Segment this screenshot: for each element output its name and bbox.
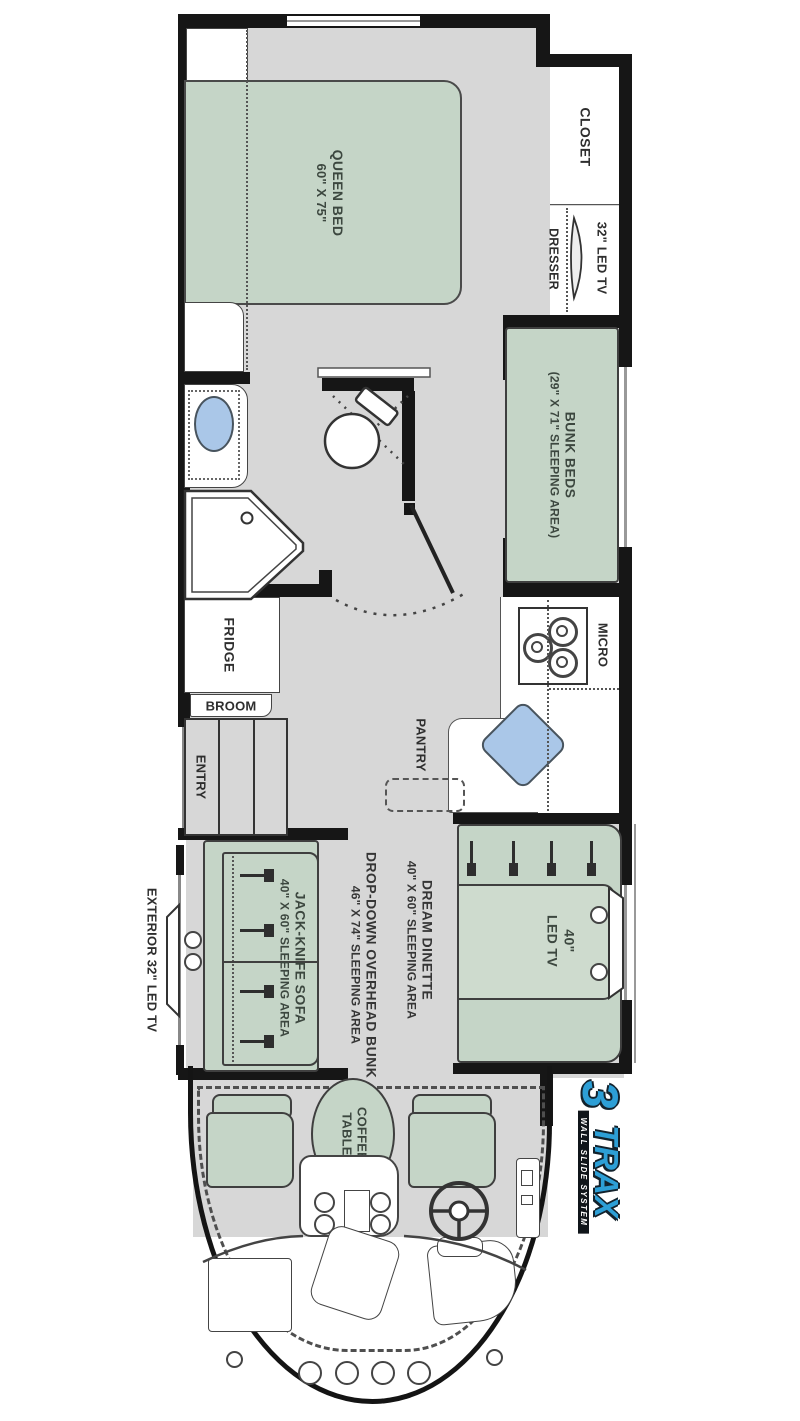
sofa-belt-4-buckle bbox=[264, 1035, 274, 1048]
wall-toilet-right bbox=[402, 391, 415, 501]
tv32-label: 32" LED TV bbox=[594, 222, 609, 294]
wall-kitchen-top bbox=[503, 583, 632, 597]
burner-1-center bbox=[531, 641, 543, 653]
bunk-label: BUNK BEDS (29" X 71" SLEEPING AREA) bbox=[548, 372, 579, 539]
wall-dinette-top bbox=[453, 813, 632, 824]
sofa-dotted-line bbox=[232, 856, 234, 1062]
pantry-text: PANTRY bbox=[413, 718, 428, 771]
rv-floorplan: QUEEN BED 60" X 75" CLOSET DRESSER 32" L… bbox=[0, 0, 800, 1421]
dinette-belt-1-buckle bbox=[467, 863, 476, 876]
sofa-label: JACK-KNIFE SOFA 40" X 60" SLEEPING AREA bbox=[278, 879, 309, 1037]
dinette-belt-4 bbox=[590, 841, 593, 865]
nose-light-4 bbox=[407, 1361, 431, 1385]
wall-bath-stub bbox=[319, 570, 332, 597]
overhead-bunk-size: 46" X 74" SLEEPING AREA bbox=[349, 852, 363, 1078]
exterior-mask-top-right bbox=[550, 0, 640, 54]
door-handle bbox=[521, 1170, 533, 1186]
dresser-label: DRESSER bbox=[546, 228, 561, 290]
trax-logo-name: TRAX bbox=[590, 1125, 621, 1219]
queen-bed-name: QUEEN BED bbox=[329, 150, 346, 237]
door-switch bbox=[521, 1195, 533, 1205]
vanity-divider bbox=[184, 372, 250, 384]
entry-step-divider-2 bbox=[253, 719, 255, 835]
burner-2-center bbox=[556, 625, 568, 637]
exterior-tv-text: EXTERIOR 32" LED TV bbox=[144, 888, 159, 1032]
pantry-label: PANTRY bbox=[413, 718, 428, 771]
closet-label: CLOSET bbox=[577, 107, 594, 166]
counter-dotted-h bbox=[549, 688, 619, 690]
sofa-belt-4 bbox=[240, 1040, 266, 1043]
dresser-dotted-edge bbox=[566, 208, 568, 312]
coffee-table-label: COFFEE TABLE bbox=[339, 1107, 370, 1161]
nose-light-2 bbox=[335, 1361, 359, 1385]
dinette-belt-4-buckle bbox=[587, 863, 596, 876]
bunk-size: (29" X 71" SLEEPING AREA) bbox=[548, 372, 562, 539]
fridge-text: FRIDGE bbox=[221, 617, 238, 672]
nightstand-head bbox=[186, 28, 248, 82]
trax-logo-number: 3 bbox=[575, 1081, 625, 1109]
window-bunk-line bbox=[624, 367, 627, 547]
dinette-tv-mount-bottom bbox=[590, 963, 608, 981]
coffee-table-line1: COFFEE bbox=[354, 1107, 369, 1161]
wall-closet-top bbox=[536, 54, 632, 67]
cupholder-3 bbox=[370, 1192, 391, 1213]
sofa-cupholder-2 bbox=[184, 953, 202, 971]
entry-label: ENTRY bbox=[193, 755, 208, 800]
bath-sink bbox=[194, 396, 234, 452]
entry-step-divider-1 bbox=[218, 719, 220, 835]
wall-toilet-jamb bbox=[404, 503, 415, 515]
dinette-label: DREAM DINETTE 40" X 60" SLEEPING AREA bbox=[405, 861, 436, 1019]
tv40-text: LED TV bbox=[544, 915, 561, 967]
dinette-tv-mount-top bbox=[590, 906, 608, 924]
cupholder-4 bbox=[370, 1214, 391, 1235]
burner-3-center bbox=[556, 656, 568, 668]
dash-left-console bbox=[208, 1258, 292, 1332]
dresser-text: DRESSER bbox=[546, 228, 561, 290]
tv40-label: 40" LED TV bbox=[544, 915, 577, 967]
steering-column bbox=[437, 1237, 483, 1257]
broom-label: BROOM bbox=[206, 698, 257, 713]
dinette-slide-outline bbox=[634, 824, 636, 1063]
broom-text: BROOM bbox=[206, 698, 257, 713]
dinette-belt-3 bbox=[550, 841, 553, 865]
sofa-belt-2 bbox=[240, 929, 266, 932]
nose-light-3 bbox=[371, 1361, 395, 1385]
tv40-size: 40" bbox=[561, 915, 578, 967]
tv32-text: 32" LED TV bbox=[594, 222, 609, 294]
entry-text: ENTRY bbox=[193, 755, 208, 800]
sofa-size: 40" X 60" SLEEPING AREA bbox=[278, 879, 292, 1037]
bed-slide-dotted-line bbox=[246, 30, 248, 370]
sofa-belt-1 bbox=[240, 874, 266, 877]
dinette-belt-1 bbox=[470, 841, 473, 865]
wall-bath-bottom bbox=[178, 584, 332, 597]
overhead-bunk-name: DROP-DOWN OVERHEAD BUNK bbox=[363, 852, 380, 1078]
trax-logo: 3 TRAX WALL SLIDE SYSTEM bbox=[575, 1081, 625, 1234]
coffee-table-line2: TABLE bbox=[339, 1107, 354, 1161]
dinette-belt-2-buckle bbox=[509, 863, 518, 876]
sofa-slide-window-line bbox=[178, 875, 181, 1045]
sofa-slide-cap-bottom bbox=[176, 1045, 184, 1075]
sofa-slide-cap-top bbox=[176, 845, 184, 875]
nose-light-1 bbox=[298, 1361, 322, 1385]
left-chair-seat bbox=[206, 1112, 294, 1188]
queen-bed-label: QUEEN BED 60" X 75" bbox=[314, 150, 346, 237]
counter-dotted-v bbox=[547, 600, 549, 811]
wall-toilet-top bbox=[322, 378, 414, 391]
dinette-belt-3-buckle bbox=[547, 863, 556, 876]
fridge-label: FRIDGE bbox=[221, 617, 238, 672]
closet-text: CLOSET bbox=[577, 107, 594, 166]
console-tray bbox=[344, 1190, 370, 1232]
sofa-cupholder-1 bbox=[184, 931, 202, 949]
window-top-line bbox=[287, 20, 420, 22]
cupholder-1 bbox=[314, 1192, 335, 1213]
micro-label: MICRO bbox=[595, 623, 610, 667]
overhead-bunk-label: DROP-DOWN OVERHEAD BUNK 46" X 74" SLEEPI… bbox=[349, 852, 380, 1078]
nose-light-small-right bbox=[486, 1349, 503, 1366]
sofa-belt-2-buckle bbox=[264, 924, 274, 937]
bunk-name: BUNK BEDS bbox=[562, 372, 579, 539]
trax-logo-tagline: WALL SLIDE SYSTEM bbox=[578, 1110, 589, 1233]
dinette-name: DREAM DINETTE bbox=[419, 861, 436, 1019]
queen-bed-size: 60" X 75" bbox=[314, 150, 329, 237]
sofa-name: JACK-KNIFE SOFA bbox=[292, 879, 309, 1037]
dinette-table bbox=[457, 884, 615, 1000]
right-chair-seat bbox=[408, 1112, 496, 1188]
dinette-size: 40" X 60" SLEEPING AREA bbox=[405, 861, 419, 1019]
micro-text: MICRO bbox=[595, 623, 610, 667]
nightstand-foot bbox=[184, 302, 244, 372]
sofa-belt-1-buckle bbox=[264, 869, 274, 882]
exterior-tv-label: EXTERIOR 32" LED TV bbox=[144, 888, 159, 1032]
window-dinette-line bbox=[624, 885, 627, 1000]
pantry-cabinet-dashed bbox=[385, 778, 465, 812]
dinette-belt-2 bbox=[512, 841, 515, 865]
sofa-belt-3 bbox=[240, 990, 266, 993]
nose-light-small-left bbox=[226, 1351, 243, 1368]
sofa-belt-3-buckle bbox=[264, 985, 274, 998]
